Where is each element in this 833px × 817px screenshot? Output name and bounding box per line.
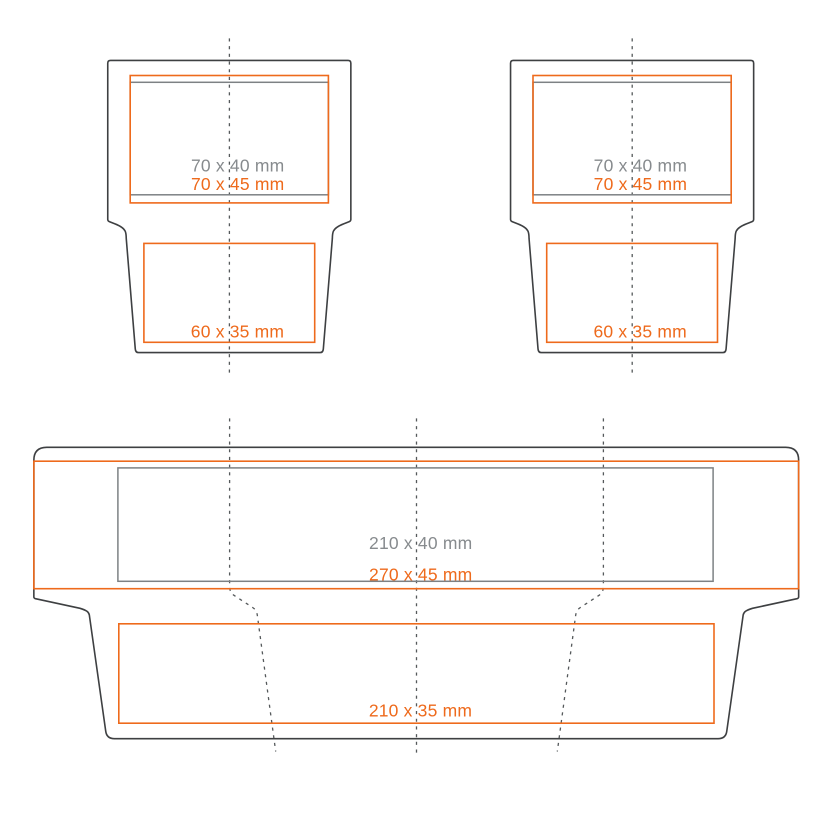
svg-text:70 x 45 mm: 70 x 45 mm xyxy=(191,174,284,194)
svg-text:270 x 45 mm: 270 x 45 mm xyxy=(369,564,472,584)
svg-text:70 x 40 mm: 70 x 40 mm xyxy=(191,155,284,175)
svg-text:70 x 45 mm: 70 x 45 mm xyxy=(594,174,687,194)
svg-text:210 x 35 mm: 210 x 35 mm xyxy=(369,700,472,720)
svg-text:60 x 35 mm: 60 x 35 mm xyxy=(593,321,686,341)
svg-text:210 x 40 mm: 210 x 40 mm xyxy=(369,533,472,553)
svg-text:60 x 35 mm: 60 x 35 mm xyxy=(191,321,284,341)
svg-text:70 x 40 mm: 70 x 40 mm xyxy=(594,155,687,175)
